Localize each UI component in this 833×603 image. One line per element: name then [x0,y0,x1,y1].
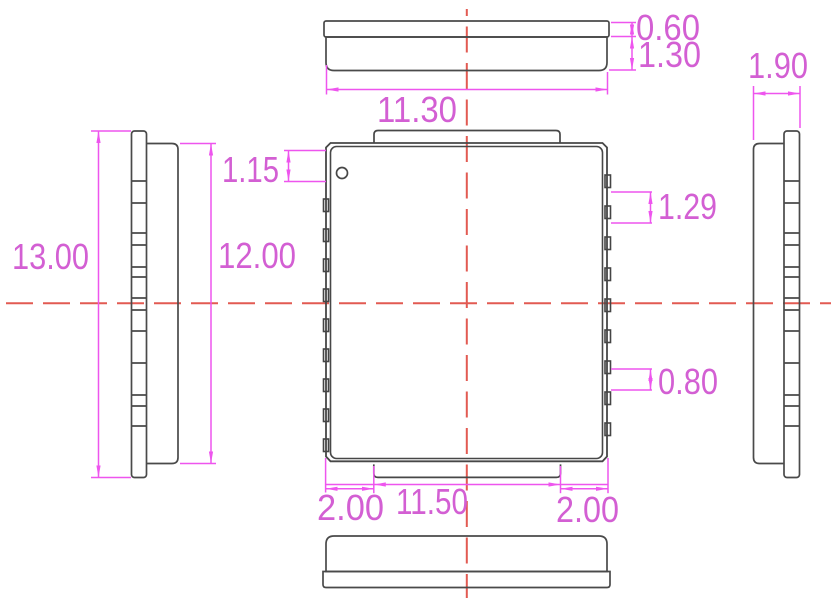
svg-text:1.30: 1.30 [638,34,701,75]
svg-text:2.00: 2.00 [317,487,384,528]
svg-text:11.50: 11.50 [396,481,468,522]
svg-text:12.00: 12.00 [218,235,296,276]
svg-text:0.80: 0.80 [658,361,718,402]
svg-text:11.30: 11.30 [377,89,457,130]
svg-text:13.00: 13.00 [12,236,89,277]
svg-text:1.29: 1.29 [658,186,717,227]
svg-text:1.15: 1.15 [222,149,279,190]
svg-text:2.00: 2.00 [556,489,619,530]
svg-text:1.90: 1.90 [748,45,808,86]
